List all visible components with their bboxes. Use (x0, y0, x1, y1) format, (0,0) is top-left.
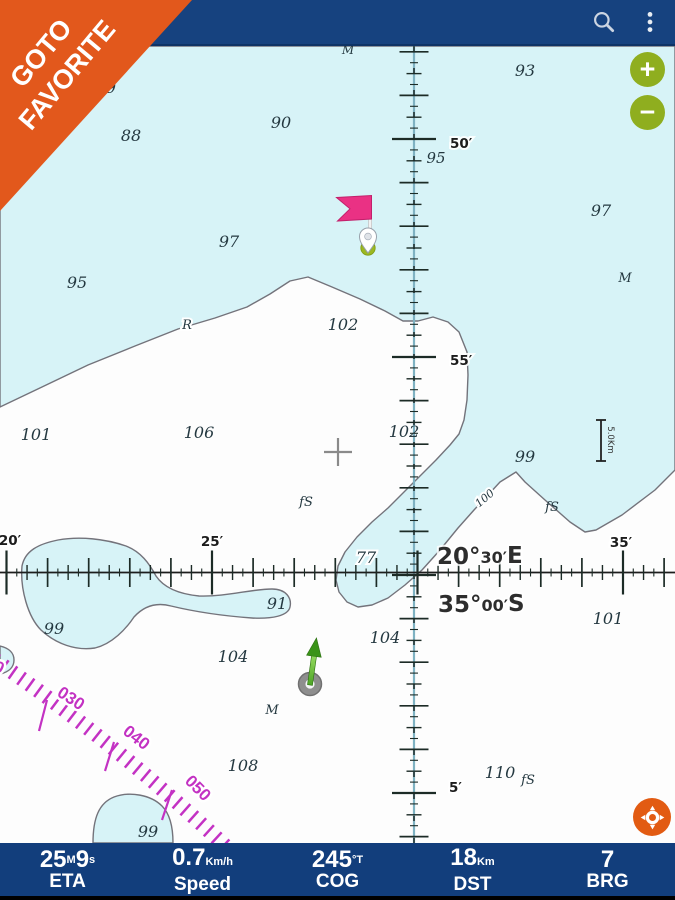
depth-sounding: 97 (219, 232, 240, 251)
stat-dst[interactable]: 18KmDST (405, 843, 540, 896)
stat-cog[interactable]: 245°TCOG (270, 843, 405, 896)
stat-label: COG (316, 872, 359, 892)
stat-label: BRG (586, 872, 628, 892)
depth-sounding: 95 (426, 149, 445, 167)
stat-label: Speed (174, 875, 231, 895)
depth-sounding: 93 (515, 61, 535, 80)
latitude-label: 35°00′S (438, 591, 525, 618)
center-on-position-button[interactable] (633, 798, 671, 836)
stat-speed[interactable]: 0.7Km/hSpeed (135, 843, 270, 896)
stat-value: 245°T (312, 847, 363, 872)
stat-value: 7 (601, 847, 614, 872)
longitude-label: 20°30′E (437, 543, 523, 570)
graticule-minute-label: 25′ (201, 534, 224, 550)
pin-hole (365, 233, 372, 240)
graticule-minute-label: 5′ (449, 780, 462, 796)
depth-sounding: 88 (121, 126, 141, 145)
depth-sounding: 101 (593, 609, 624, 628)
depth-sounding: 90 (271, 113, 291, 132)
depth-sounding: R (181, 318, 192, 333)
depth-sounding: 91 (267, 594, 287, 613)
nautical-chart[interactable]: 020030040050 50′55′5′20′25′35′ 20°30′E35… (0, 0, 675, 900)
stat-eta[interactable]: 25M9sETA (0, 843, 135, 896)
stat-label: ETA (49, 872, 86, 892)
graticule-minute-label: 20′ (0, 533, 22, 549)
depth-sounding: 106 (184, 423, 215, 442)
search-button[interactable] (589, 7, 619, 37)
depth-sounding: M (617, 271, 632, 286)
compass-target-icon (639, 804, 666, 831)
stat-value: 25M9s (40, 847, 95, 872)
depth-sounding: M (264, 703, 279, 718)
more-vert-icon (637, 9, 663, 35)
depth-sounding: 77 (356, 548, 377, 567)
depth-sounding: 102 (328, 315, 359, 334)
stat-brg[interactable]: 7BRG (540, 843, 675, 896)
stat-value: 0.7Km/h (172, 845, 233, 875)
depth-sounding: 97 (591, 201, 612, 220)
depth-sounding: 104 (370, 628, 401, 647)
depth-sounding: fS (298, 495, 313, 510)
stat-label: DST (454, 875, 492, 895)
depth-sounding: 99 (44, 619, 64, 638)
depth-sounding: 110 (485, 763, 516, 782)
depth-sounding: fS (520, 773, 535, 788)
depth-sounding: 108 (228, 756, 259, 775)
depth-sounding: fS (544, 500, 559, 515)
depth-sounding: 99 (138, 822, 158, 841)
depth-sounding: 99 (515, 447, 535, 466)
depth-sounding: 95 (67, 273, 87, 292)
screen-bottom-edge (0, 896, 675, 900)
nav-data-bar: 25M9sETA0.7Km/hSpeed245°TCOG18KmDST7BRG (0, 843, 675, 896)
depth-sounding: 104 (218, 647, 249, 666)
overflow-menu-button[interactable] (635, 7, 665, 37)
graticule-minute-label: 55′ (450, 353, 473, 369)
zoom-out-button[interactable]: − (630, 95, 665, 130)
graticule-minute-label: 35′ (610, 535, 633, 551)
depth-sounding: 102 (389, 422, 420, 441)
graticule-minute-label: 50′ (450, 136, 473, 152)
zoom-in-button[interactable]: + (630, 52, 665, 87)
search-icon (591, 9, 617, 35)
chart-plotter-screen: 020030040050 50′55′5′20′25′35′ 20°30′E35… (0, 0, 675, 900)
depth-sounding: 101 (21, 425, 52, 444)
scale-bar-label: 5.0Km (605, 426, 615, 453)
stat-value: 18Km (450, 845, 494, 875)
